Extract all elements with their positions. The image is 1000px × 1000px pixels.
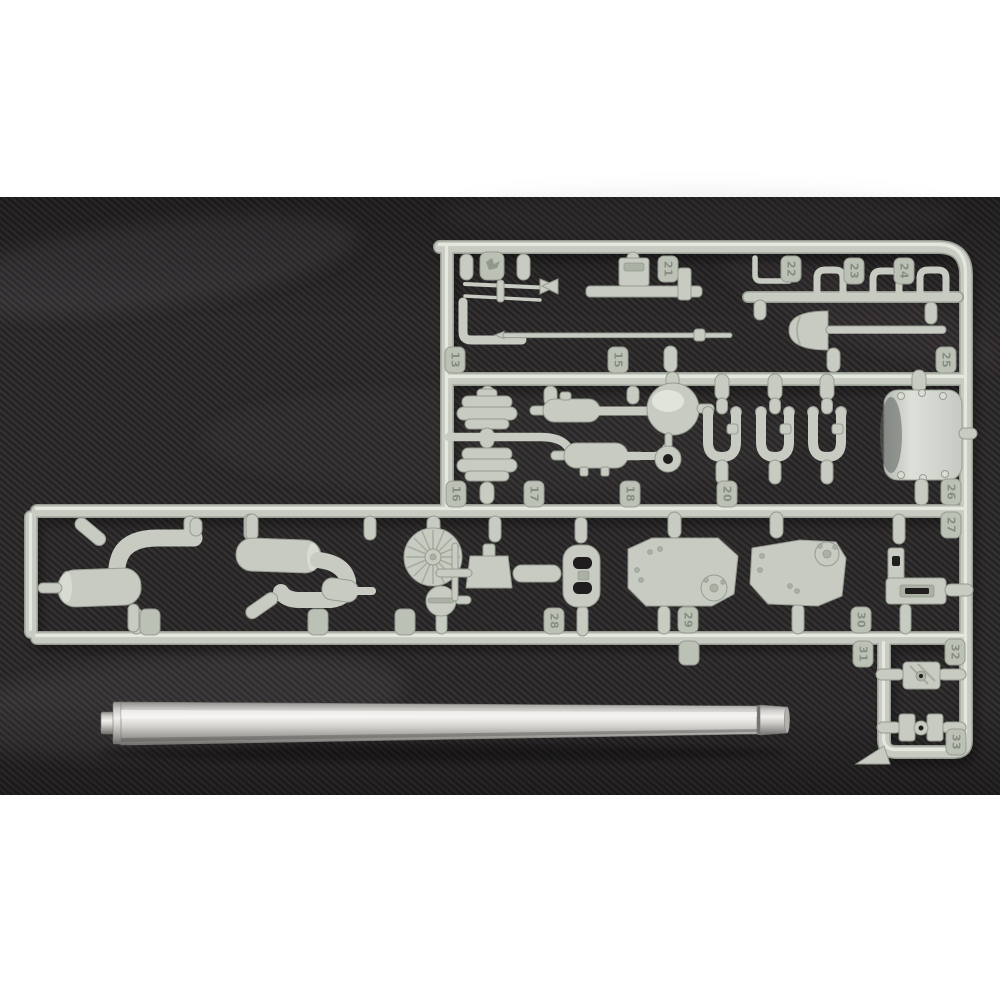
part-number-tab: 31 — [853, 641, 873, 667]
part-number-tab: 30 — [851, 607, 871, 633]
part-number-tab: 20 — [717, 481, 737, 507]
part-number-tab: 23 — [844, 258, 864, 284]
blank-tab — [308, 609, 328, 635]
metal-gun-barrel — [98, 702, 790, 762]
svg-text:29: 29 — [682, 612, 695, 628]
part-number-tab: 29 — [678, 607, 698, 633]
svg-text:33: 33 — [950, 734, 963, 750]
svg-text:25: 25 — [940, 352, 953, 368]
svg-text:20: 20 — [721, 486, 734, 502]
part-number-tab: 26 — [941, 479, 961, 505]
flat-plate-part-1 — [628, 538, 738, 606]
barrel-groove — [757, 705, 760, 735]
blank-tab — [395, 609, 415, 635]
svg-text:15: 15 — [612, 352, 625, 368]
part-number-tab: 21 — [658, 256, 678, 282]
svg-text:13: 13 — [449, 352, 462, 368]
part-number-tab: 25 — [936, 347, 956, 373]
blank-tab — [679, 641, 699, 665]
barrel-shadow — [98, 744, 788, 762]
blank-tab — [140, 609, 160, 635]
svg-text:30: 30 — [855, 612, 868, 628]
svg-text:31: 31 — [857, 646, 870, 662]
svg-text:23: 23 — [848, 263, 861, 279]
flat-plate-part-2 — [750, 540, 846, 606]
small-capsule-part — [513, 565, 561, 582]
sprue-photo: 21 22 23 24 25 15 13 16 17 18 20 26 27 2… — [0, 0, 1000, 1000]
svg-text:16: 16 — [450, 486, 463, 502]
svg-text:26: 26 — [945, 484, 958, 500]
part-number-tab: 18 — [620, 481, 640, 507]
svg-text:18: 18 — [624, 486, 637, 502]
svg-text:28: 28 — [548, 613, 561, 629]
manufacturer-logo-tab — [480, 252, 504, 280]
part-number-tab: 22 — [781, 256, 801, 282]
part-number-tab: 27 — [941, 512, 961, 538]
part-number-tab: 33 — [946, 729, 966, 755]
part-number-tab: 16 — [446, 481, 466, 507]
photo-stage: 21 22 23 24 25 15 13 16 17 18 20 26 27 2… — [0, 0, 1000, 1000]
svg-text:27: 27 — [945, 517, 958, 533]
svg-text:17: 17 — [528, 486, 541, 502]
part-number-tab: 32 — [945, 639, 965, 665]
part-number-tab: 24 — [894, 258, 914, 284]
part-number-tab: 13 — [445, 347, 465, 373]
svg-text:21: 21 — [662, 261, 675, 277]
svg-text:22: 22 — [785, 261, 798, 277]
oval-bracket-part — [563, 545, 600, 607]
svg-text:32: 32 — [949, 644, 962, 660]
barrel-end-segment — [760, 705, 787, 735]
part-number-tab: 15 — [608, 347, 628, 373]
part-number-tab: 28 — [544, 608, 564, 634]
svg-text:24: 24 — [898, 263, 911, 279]
part-number-tab: 17 — [524, 481, 544, 507]
